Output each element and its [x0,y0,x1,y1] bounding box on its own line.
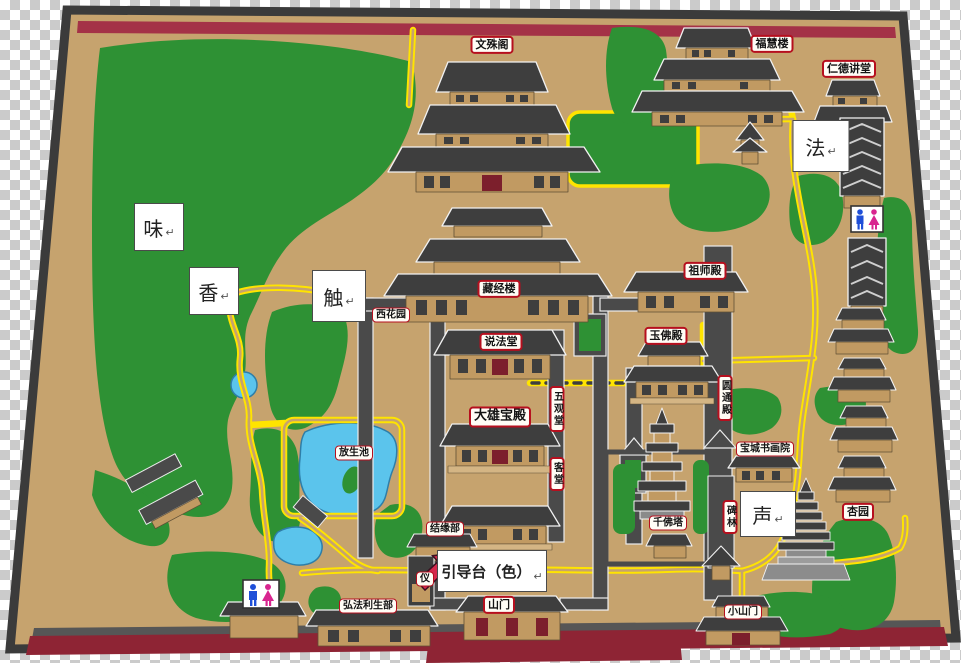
label-shuofatang: 说法堂 [480,333,523,351]
label-cangjinglou: 藏经楼 [478,280,521,298]
sense-box-wei: 味↵ [134,203,184,251]
sense-box-wei-text: 味 [143,213,163,242]
label-zushidian: 祖师殿 [684,262,727,280]
label-jieyuanbu: 结缘部 [426,522,464,537]
label-wenshuge: 文殊阁 [471,36,514,54]
label-baochengshuhuayuan: 宝城书画院 [736,442,794,457]
label-yufodian: 玉佛殿 [645,327,688,345]
label-hongfalishengbu: 弘法利生部 [339,599,397,614]
label-xiaoshanmen: 小山门 [724,605,762,620]
label-daxiongbaodian: 大雄宝殿 [469,407,531,428]
sense-box-chu: 触↵ [312,270,366,322]
label-yuantongdian: 圆通殿 [718,375,733,421]
return-mark-icon: ↵ [827,145,836,158]
label-beilin: 碑林 [723,500,738,534]
return-mark-icon: ↵ [220,290,229,303]
return-mark-icon: ↵ [165,226,174,239]
guide-platform-text: 引导台（色） [441,561,531,582]
guide-platform-box: 引导台（色）↵ [437,550,547,592]
sense-box-fa-text: 法 [805,132,825,161]
sense-box-chu-text: 触 [323,282,343,311]
labels-layer: 文殊阁 福慧楼 仁德讲堂 藏经楼 西花园 说法堂 祖师殿 玉佛殿 大雄宝殿 五观… [0,0,961,663]
sense-box-xiang-text: 香 [198,277,218,306]
label-rendejiangtang: 仁德讲堂 [822,60,876,78]
label-wuguantang: 五观堂 [550,386,565,432]
label-xihuayuan: 西花园 [372,308,410,323]
label-shanmen: 山门 [483,596,515,614]
sense-box-xiang: 香↵ [189,267,239,315]
label-ketang: 客堂 [550,457,565,491]
sense-box-sheng-text: 声 [752,500,772,529]
label-fangshengchi: 放生池 [335,446,373,461]
label-fuhuilou: 福慧楼 [751,35,794,53]
sense-box-sheng: 声↵ [740,491,796,537]
return-mark-icon: ↵ [774,513,783,526]
label-xingyuan: 杏园 [842,503,874,521]
label-yimen-partial: 仪 [416,572,434,587]
return-mark-icon: ↵ [345,295,354,308]
map-canvas: 文殊阁 福慧楼 仁德讲堂 藏经楼 西花园 说法堂 祖师殿 玉佛殿 大雄宝殿 五观… [0,0,961,663]
return-mark-icon: ↵ [533,570,542,583]
label-qianfota: 千佛塔 [649,516,687,531]
sense-box-fa: 法↵ [793,120,850,172]
